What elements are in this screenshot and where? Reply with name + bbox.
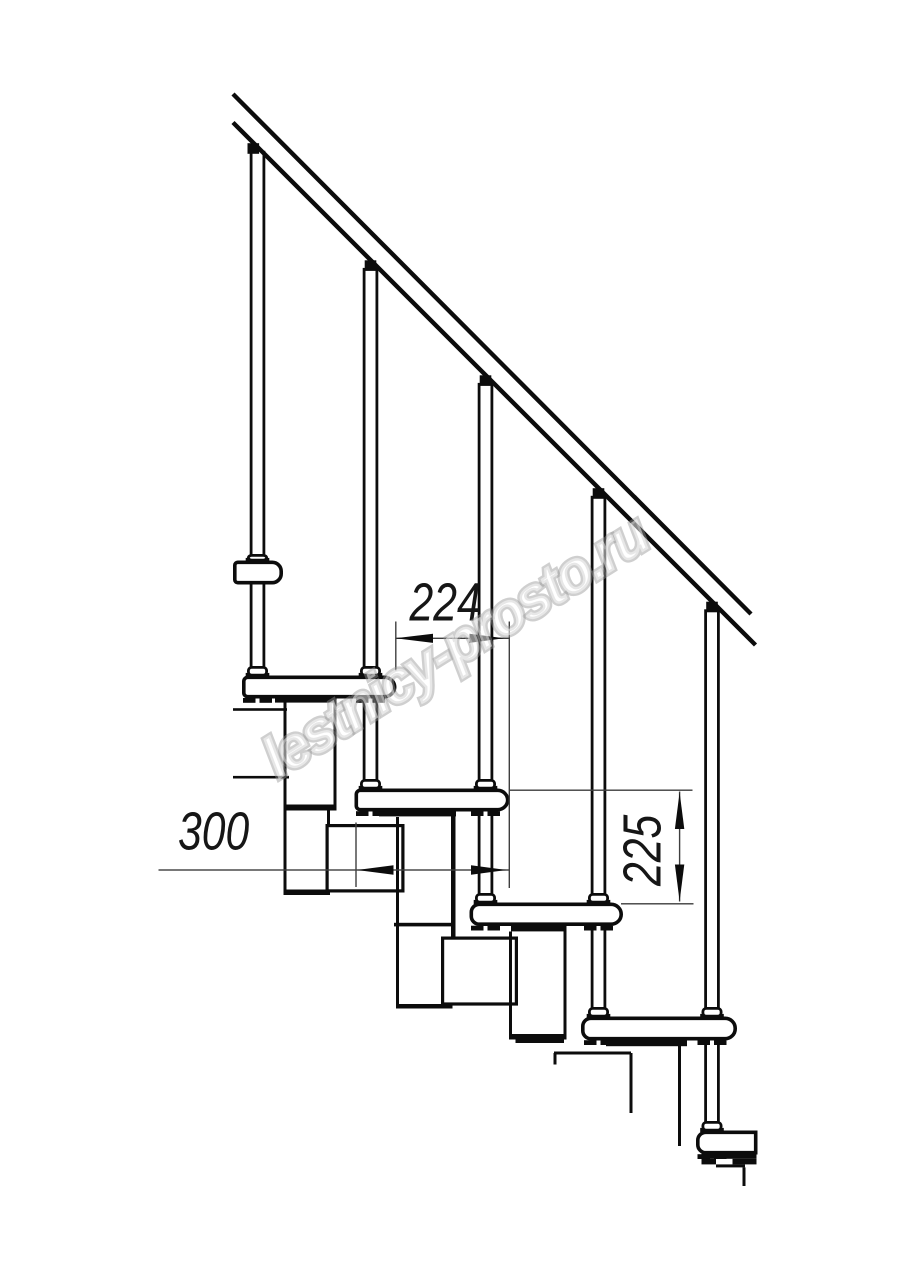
svg-text:225: 225 bbox=[613, 814, 673, 887]
svg-text:300: 300 bbox=[178, 802, 249, 862]
